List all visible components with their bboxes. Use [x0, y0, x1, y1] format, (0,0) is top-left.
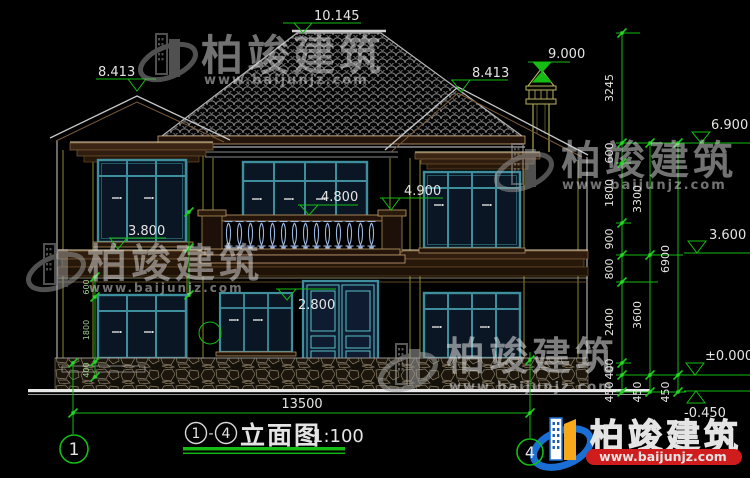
elev-belt: 3.600	[709, 228, 746, 243]
elev-eave: 6.900	[711, 118, 748, 133]
detail-callout-circle	[199, 322, 221, 344]
floor1-center-window	[216, 293, 296, 356]
drawing-scale: 1:100	[312, 426, 364, 447]
watermark-top: 柏竣建筑 www.baijunjz.com	[135, 31, 385, 88]
drawing-title: 立面图	[240, 421, 321, 450]
elev-floor2-window: 4.900	[404, 184, 441, 199]
title-separator: -	[208, 426, 213, 442]
elev-ground-zero: ±0.000	[705, 349, 750, 364]
window-sill	[419, 248, 525, 253]
cad-elevation-screenshot: 10.145 9.000 8.413 8.413 6.900 4.900 4.8…	[0, 0, 750, 478]
elevation-drawing-canvas: 10.145 9.000 8.413 8.413 6.900 4.900 4.8…	[0, 0, 750, 478]
balcony-right-post	[382, 216, 402, 252]
logo-building-left	[550, 418, 562, 460]
elev-chimney: 9.000	[548, 47, 585, 62]
elev-roof-right: 8.413	[472, 66, 509, 81]
dim-3245: 3245	[603, 74, 616, 102]
title-underline-thick	[183, 447, 345, 450]
brand-logo-color: 柏竣建筑 www.baijunjz.com	[528, 417, 742, 475]
brand-url: www.baijunjz.com	[599, 449, 727, 464]
dim-800: 800	[603, 259, 616, 280]
title-underline-thin	[183, 453, 345, 454]
dim-total-width: 13500	[281, 397, 322, 412]
elev-door-top: 2.800	[298, 298, 335, 313]
watermark-url: www.baijunjz.com	[204, 73, 369, 88]
watermark-url: www.baijunjz.com	[89, 281, 244, 295]
watermark-bottom-center: 柏竣建筑 www.baijunjz.com	[375, 335, 618, 397]
dim-2400: 2400	[603, 308, 616, 336]
title-block: 1 - 4 立面图 1:100	[183, 421, 364, 454]
watermark-url: www.baijunjz.com	[562, 178, 727, 193]
dim-900: 900	[603, 229, 616, 250]
floor1-left-window	[93, 295, 193, 362]
watermark-right: 柏竣建筑 www.baijunjz.com	[491, 138, 737, 197]
elev-ridge: 10.145	[314, 9, 360, 24]
dim-left-1800: 1800	[82, 320, 91, 340]
dim-450-b: 450	[631, 382, 644, 403]
balcony-top-rail	[222, 215, 382, 221]
elev-floor2-sill: 3.800	[128, 224, 165, 239]
dim-3600: 3600	[631, 301, 644, 329]
elev-roof-left: 8.413	[98, 65, 135, 80]
title-axis-to: 4	[222, 426, 231, 442]
axis-bubble-right-number: 4	[525, 443, 535, 462]
logo-building-right	[564, 419, 576, 460]
dim-450-c: 450	[659, 382, 672, 403]
elev-balcony: 4.800	[321, 190, 358, 205]
axis-bubble-left-number: 1	[69, 440, 80, 460]
watermark-logo	[135, 34, 200, 87]
dim-left-400: 400	[82, 362, 91, 377]
title-axis-from: 1	[192, 426, 201, 442]
watermark-url: www.baijunjz.com	[449, 380, 614, 395]
watermark-left: 柏竣建筑 www.baijunjz.com	[23, 241, 263, 297]
dim-6900: 6900	[659, 245, 672, 273]
watermark-brand: 柏竣建筑	[446, 335, 618, 380]
